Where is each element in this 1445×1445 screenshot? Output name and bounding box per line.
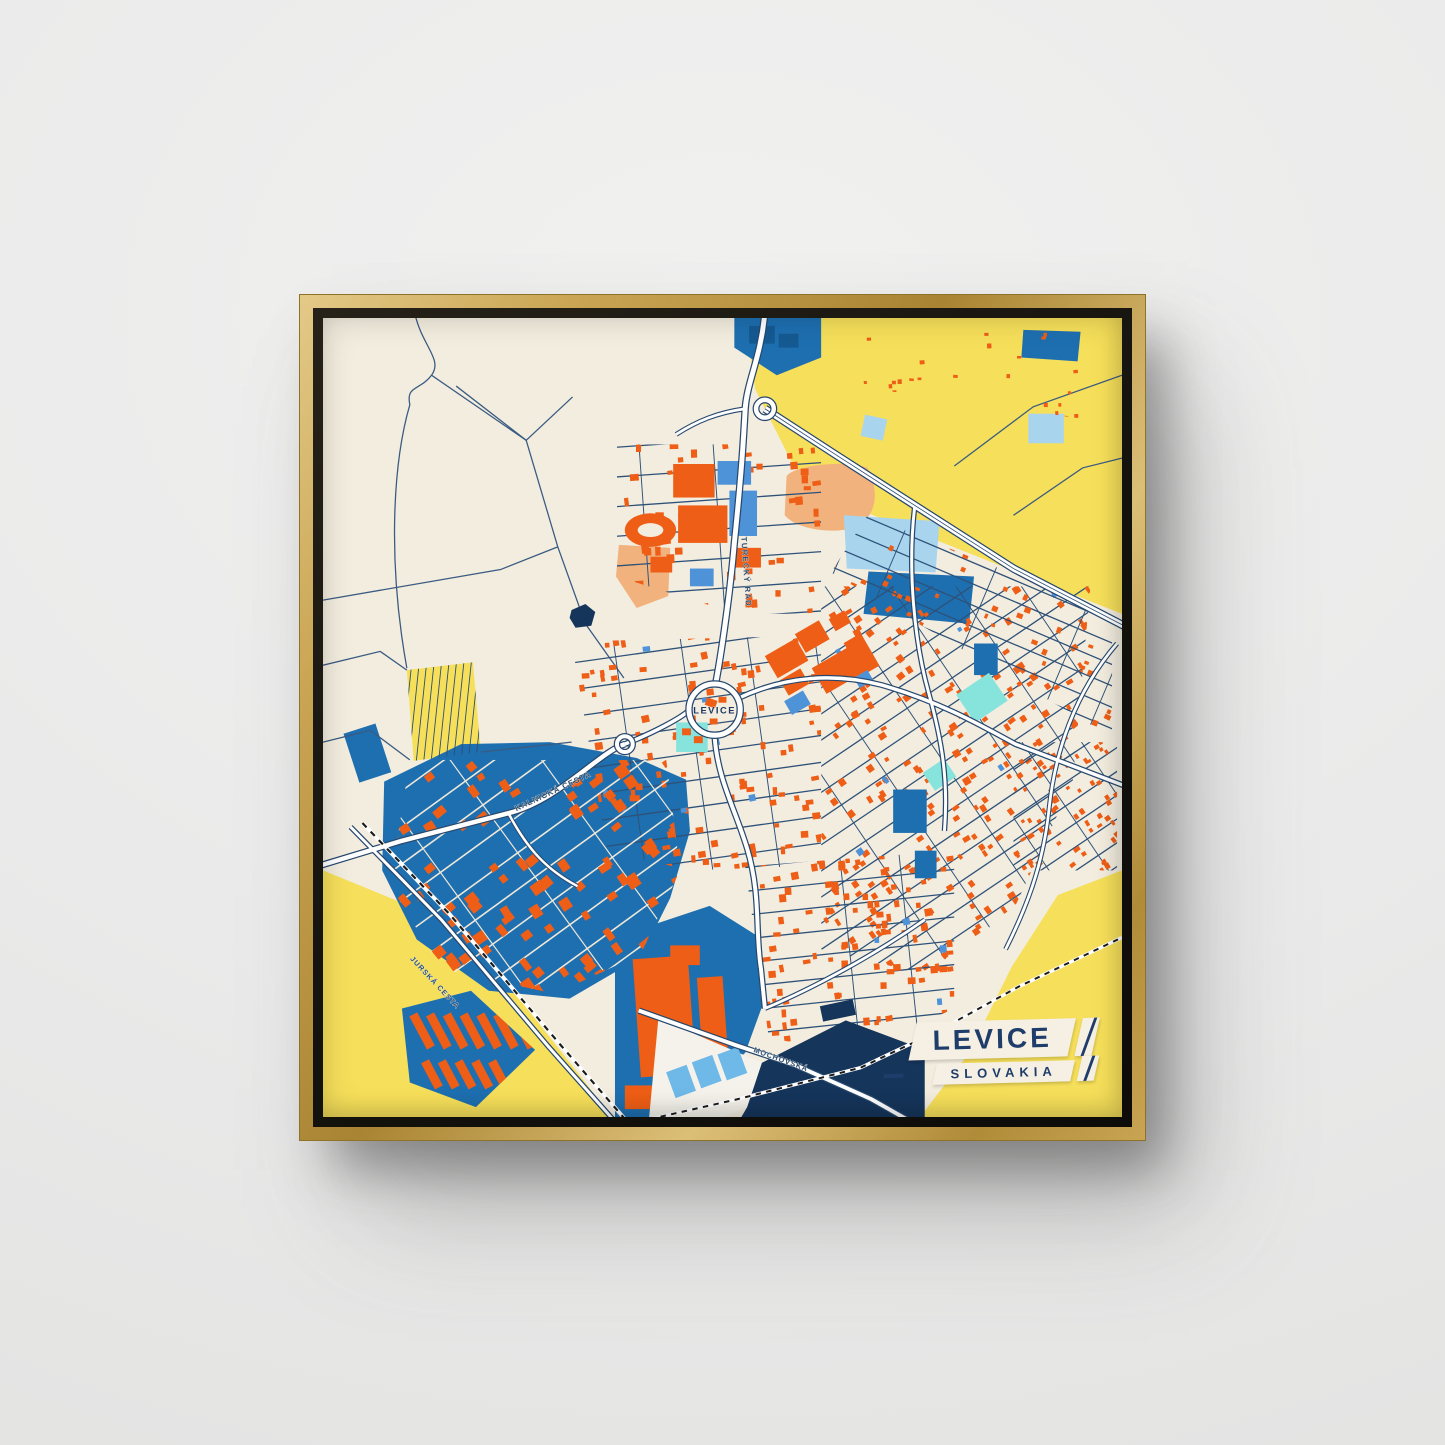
title-card: LEVICE SLOVAKIA xyxy=(912,1018,1097,1086)
title-card-country-row: SLOVAKIA xyxy=(913,1056,1097,1086)
city-center-label: LEVICE xyxy=(693,706,736,716)
title-card-city-text: LEVICE xyxy=(932,1022,1052,1057)
title-card-city-box: LEVICE xyxy=(908,1018,1076,1060)
title-card-dash xyxy=(883,1073,904,1077)
title-card-country-text: SLOVAKIA xyxy=(950,1064,1057,1082)
frame-inner-lining: TURECKÝ RAD KALNICKÁ CESTA JURSKÁ CESTA … xyxy=(313,308,1132,1127)
picture-frame: TURECKÝ RAD KALNICKÁ CESTA JURSKÁ CESTA … xyxy=(300,295,1145,1140)
title-card-city-row: LEVICE xyxy=(912,1018,1096,1061)
wall-background: TURECKÝ RAD KALNICKÁ CESTA JURSKÁ CESTA … xyxy=(0,0,1445,1445)
map-artwork: TURECKÝ RAD KALNICKÁ CESTA JURSKÁ CESTA … xyxy=(323,318,1122,1117)
title-card-country-box: SLOVAKIA xyxy=(932,1060,1075,1085)
poster-canvas: TURECKÝ RAD KALNICKÁ CESTA JURSKÁ CESTA … xyxy=(323,318,1122,1117)
title-card-country-accent-chip xyxy=(1077,1056,1100,1082)
